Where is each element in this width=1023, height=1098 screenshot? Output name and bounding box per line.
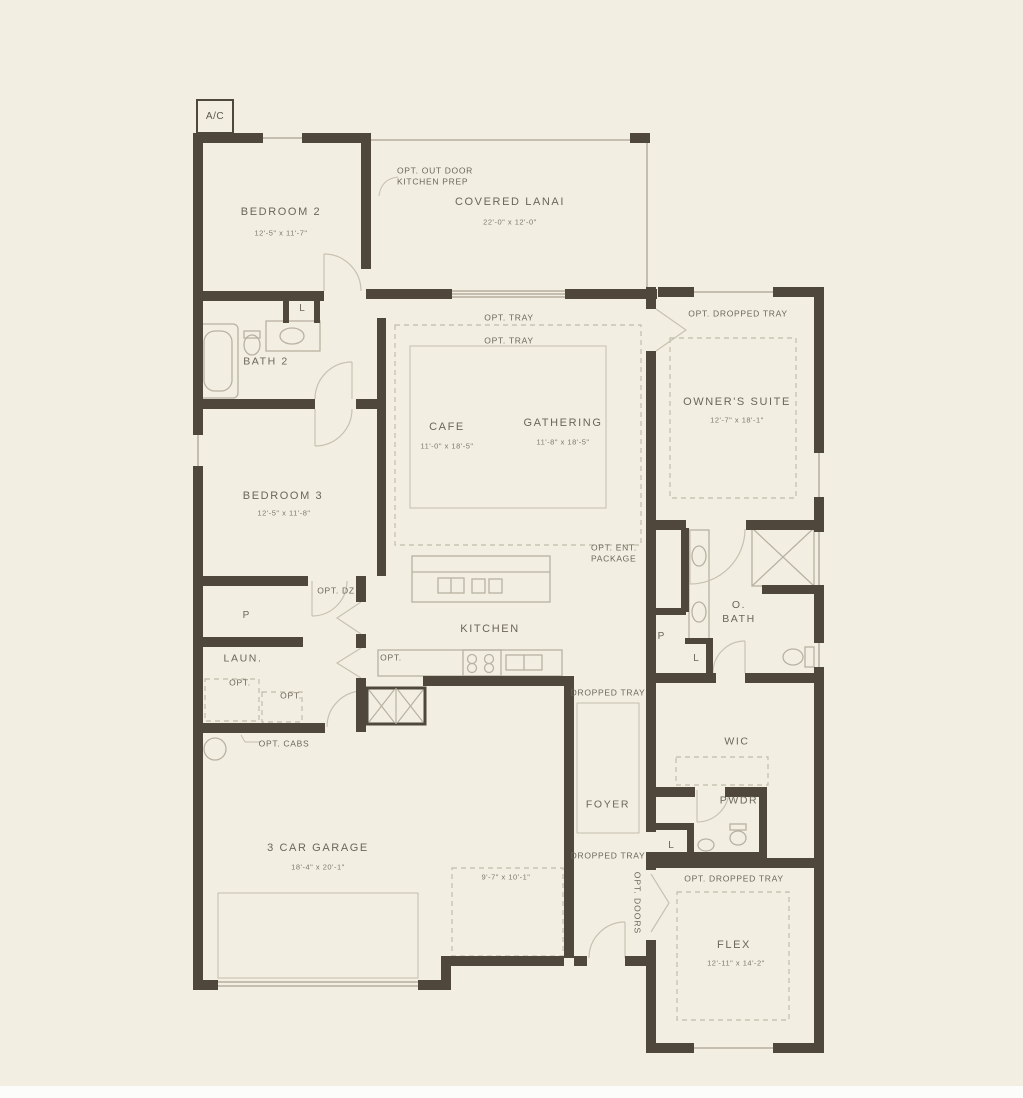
room-label-wic: WIC (724, 735, 749, 748)
room-dims-gathering: 11'-8" x 18'-5" (536, 437, 589, 446)
annotation-dropped-tray-lower: DROPPED TRAY (571, 851, 646, 862)
water-heater (204, 738, 226, 760)
bedroom2-door (324, 254, 361, 291)
ac-unit-box: A/C (196, 99, 234, 134)
room-label-laundry: LAUN. (224, 652, 263, 665)
owners-hall-opening (656, 309, 686, 351)
annotation-opt-kitchen: OPT. (380, 653, 402, 664)
bath2-toilet (244, 331, 260, 355)
room-dims-flex: 12'-11" x 14'-2" (707, 958, 765, 967)
room-dims-bedroom-2: 12'-5" x 11'-7" (254, 228, 307, 237)
room-label-owners-suite: OWNER'S SUITE (683, 396, 791, 410)
floorplan-drawing (0, 0, 1023, 1098)
bath2-sink (266, 321, 320, 351)
room-label-flex: FLEX (717, 939, 751, 953)
room-dims-cafe: 11'-0" x 18'-5" (420, 441, 473, 450)
room-label-cafe: CAFE (429, 421, 465, 435)
label-pantry: P (243, 610, 250, 623)
room-dims-owners-suite: 12'-7" x 18'-1" (710, 415, 764, 424)
laundry-opening-2 (337, 648, 361, 678)
room-label-foyer: FOYER (586, 798, 630, 811)
room-dims-covered-lanai: 22'-0" x 12'-0" (483, 217, 537, 226)
annotation-opt-doors: OPT. DOORS (632, 872, 643, 934)
kitchen-island (412, 556, 550, 602)
room-label-covered-lanai: COVERED LANAI (455, 196, 565, 210)
owners-suite-bath-door (690, 529, 745, 584)
label-foyer-linen: L (668, 840, 674, 853)
ac-label: A/C (206, 111, 224, 122)
wic-door (713, 641, 745, 673)
annotation-opt-laundry-left: OPT. (229, 678, 251, 689)
owners-bath-toilet (783, 647, 814, 667)
annotation-opt-outdoor-kitchen-prep: OPT. OUT DOOR KITCHEN PREP (397, 165, 473, 186)
bath2-tub (198, 324, 238, 398)
walls (193, 133, 824, 1053)
room-label-gathering: GATHERING (524, 417, 603, 431)
label-hall-linen: L (693, 653, 699, 666)
room-dims-bedroom-3: 12'-5" x 11'-8" (257, 508, 310, 517)
room-label-powder: PWDR (720, 794, 758, 807)
annotation-opt-dz: OPT. DZ (317, 586, 355, 597)
laundry-opening-1 (337, 602, 361, 634)
room-dims-garage-bay: 9'-7" x 10'-1" (482, 872, 531, 881)
bedroom3-door (315, 409, 352, 446)
annotation-opt-dropped-tray-owner: OPT. DROPPED TRAY (688, 309, 787, 320)
owners-bath-vanity (689, 530, 709, 642)
kitchen-counter (378, 650, 562, 676)
flex-opt-doors (651, 874, 669, 932)
label-hall-pantry: P (658, 631, 665, 644)
coat-closet (367, 688, 425, 724)
annotation-dropped-tray-upper: DROPPED TRAY (571, 688, 646, 699)
floor-plan: A/C BEDROOM 2 12'-5" x 11'-7" COVERED LA… (0, 0, 1023, 1098)
room-dims-garage: 18'-4" x 20'-1" (291, 862, 345, 871)
annotation-opt-tray-2: OPT. TRAY (484, 336, 533, 347)
annotation-opt-tray-1: OPT. TRAY (484, 313, 533, 324)
room-label-kitchen: KITCHEN (460, 623, 519, 637)
bottom-strip (0, 1086, 1023, 1098)
annotation-opt-dropped-tray-flex: OPT. DROPPED TRAY (684, 874, 783, 885)
room-label-bath-2: BATH 2 (243, 355, 289, 368)
label-bath2-linen: L (299, 303, 305, 316)
annotation-opt-laundry-right: OPT. (280, 691, 302, 702)
room-label-bedroom-3: BEDROOM 3 (243, 490, 323, 504)
owners-bath-shower (752, 528, 814, 586)
front-door (589, 922, 625, 958)
powder-sink (698, 839, 714, 851)
bath2-door (315, 362, 352, 399)
powder-toilet (730, 824, 746, 845)
annotation-opt-cabs: OPT. CABS (259, 739, 310, 750)
room-label-owners-bath: O. BATH (722, 598, 756, 626)
window-lines (198, 138, 819, 1048)
room-label-bedroom-2: BEDROOM 2 (241, 206, 321, 220)
annotation-opt-ent-package: OPT. ENT. PACKAGE (591, 542, 637, 563)
room-label-garage: 3 CAR GARAGE (267, 842, 369, 856)
